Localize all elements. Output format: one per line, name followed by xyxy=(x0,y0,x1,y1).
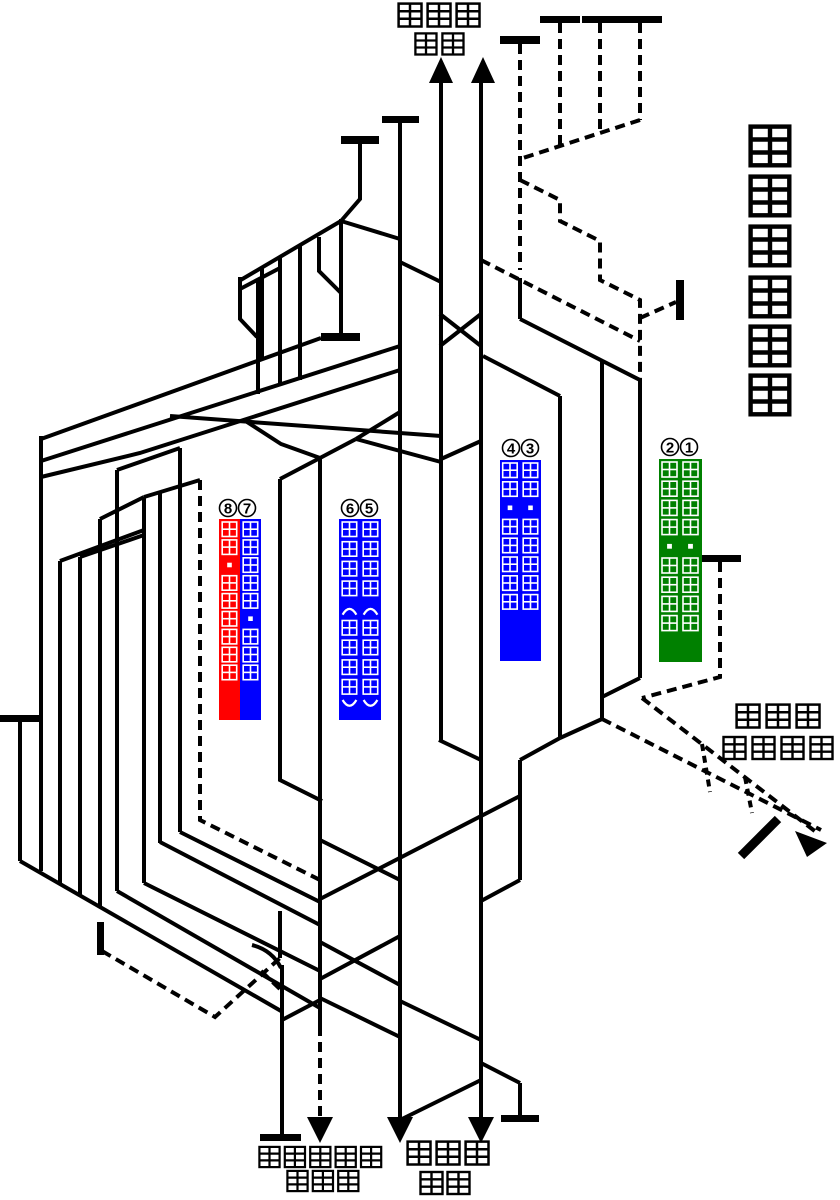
svg-text:2: 2 xyxy=(666,439,674,456)
svg-text:8: 8 xyxy=(224,500,232,517)
svg-text:5: 5 xyxy=(365,500,373,517)
svg-text:3: 3 xyxy=(526,440,534,457)
svg-text:7: 7 xyxy=(243,500,251,517)
svg-text:4: 4 xyxy=(507,440,516,457)
svg-text:1: 1 xyxy=(685,439,693,456)
svg-text:6: 6 xyxy=(346,500,354,517)
